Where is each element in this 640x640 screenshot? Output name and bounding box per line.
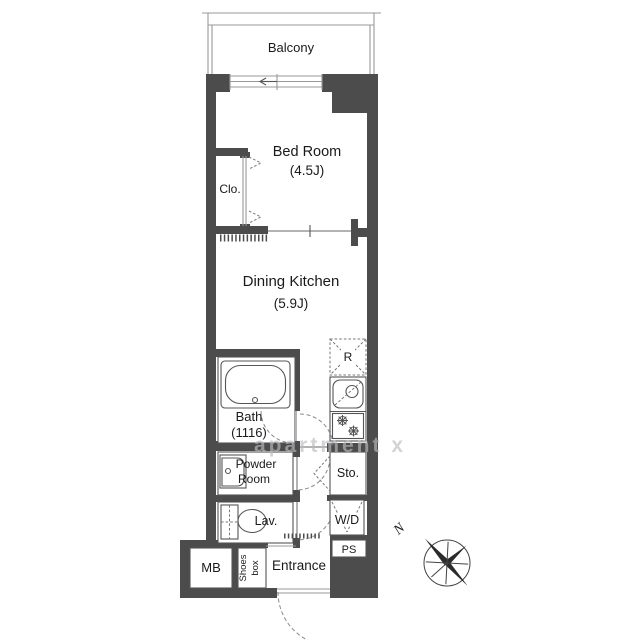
shoes-box-label-line2: box [250, 560, 261, 576]
dining-kitchen-label: Dining Kitchen [243, 273, 340, 290]
wall-right [367, 74, 378, 598]
wall-top-left-block [206, 74, 230, 92]
bedroom-size: (4.5J) [290, 163, 325, 178]
closet-door-swing-bottom [249, 211, 261, 223]
bedroom-label: Bed Room [273, 144, 342, 160]
dining-kitchen-size: (5.9J) [274, 296, 309, 311]
wall-left [206, 74, 216, 598]
storage-folding-door [314, 456, 330, 491]
meter-box-label: MB [201, 560, 221, 575]
closet-label: Clo. [219, 182, 240, 196]
washer-dryer-label: W/D [335, 513, 359, 527]
kitchen-sink [333, 380, 363, 408]
floor-plan-drawing: Balcony Bed Room (4.5J) Clo. Dining Kitc… [0, 0, 640, 640]
bed-dk-stub-v [351, 219, 358, 246]
powder-room-label-line2: Room [238, 472, 270, 486]
entrance-door-arc [278, 592, 332, 640]
balcony-window [230, 74, 322, 90]
entrance-label: Entrance [272, 558, 326, 573]
closet-bottom-bar [216, 226, 268, 234]
floor-plan-page: Balcony Bed Room (4.5J) Clo. Dining Kitc… [0, 0, 640, 640]
closet-door [243, 156, 261, 226]
shoes-box-label-line1: Shoes [238, 554, 249, 581]
bath-top-bar [216, 349, 300, 357]
kitchen-faucet [346, 386, 358, 398]
closet-pivot-top [240, 152, 250, 158]
powder-room-label-line1: Powder [236, 457, 277, 471]
powder-bottom-bar [216, 495, 300, 502]
hall-stub-mid [293, 490, 300, 502]
bed-dk-stub-h [358, 228, 367, 237]
watermark-text: apartment x [254, 434, 406, 457]
lavatory-label: Lav. [255, 514, 278, 528]
lav-door-arc [297, 502, 335, 540]
closet-door-swing-top [249, 157, 261, 169]
compass-rose: N [390, 520, 487, 600]
bath-label: Bath [236, 409, 263, 424]
bottom-wall-left [180, 588, 277, 598]
refrigerator-label: R [344, 350, 353, 364]
stove-burner [337, 415, 348, 426]
hall-doors [297, 414, 335, 540]
pipe-space-label: PS [342, 544, 357, 556]
compass-north-label: N [390, 520, 408, 539]
balcony-label: Balcony [268, 40, 315, 55]
storage-label: Sto. [337, 466, 359, 480]
